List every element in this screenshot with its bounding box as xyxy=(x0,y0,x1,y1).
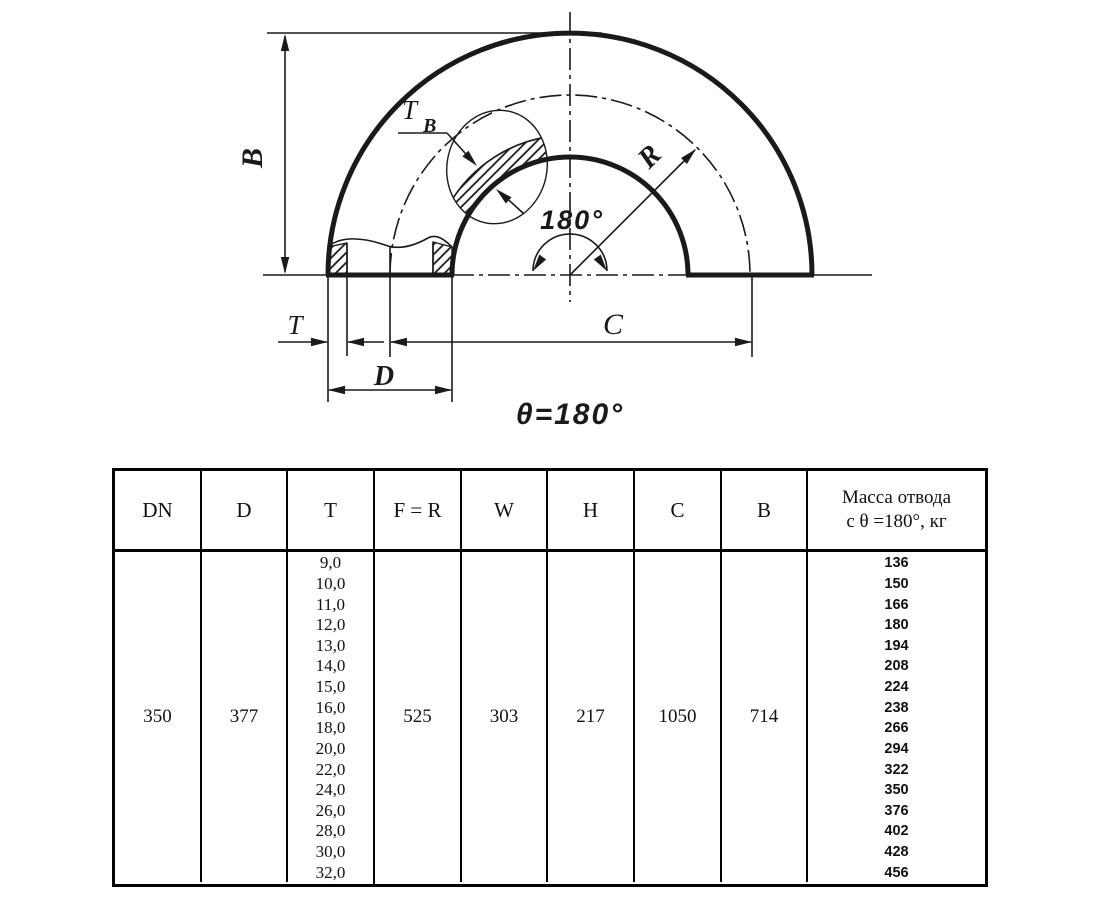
dimensions-table: DN D T F = R W H C B Масса отвода с θ =1… xyxy=(112,468,988,887)
t-value-line: 24,0 xyxy=(288,780,373,801)
mass-value-line: 238 xyxy=(808,697,985,718)
mass-header-line2: с θ =180°, кг xyxy=(846,510,946,534)
mass-value-line: 456 xyxy=(808,862,985,883)
dimension-label-c: C xyxy=(603,308,624,341)
cell-b: 714 xyxy=(722,552,808,882)
t-value-line: 9,0 xyxy=(288,553,373,574)
mass-value-line: 224 xyxy=(808,677,985,698)
cell-mass-values: 1361501661801942082242382662943223503764… xyxy=(808,552,985,884)
col-header-t: T xyxy=(288,471,375,552)
radius-label-r: R xyxy=(631,138,668,175)
t-value-line: 28,0 xyxy=(288,821,373,842)
mass-value-line: 428 xyxy=(808,842,985,863)
page: B T B R 180° T C D θ=180° DN D T F = R W… xyxy=(0,0,1100,900)
cell-fr: 525 xyxy=(375,552,462,882)
cell-w: 303 xyxy=(462,552,548,882)
t-value-line: 14,0 xyxy=(288,656,373,677)
dimension-label-tb: T xyxy=(402,95,419,125)
arrowheads xyxy=(281,34,752,394)
col-header-h: H xyxy=(548,471,635,552)
mass-value-line: 402 xyxy=(808,821,985,842)
t-value-line: 13,0 xyxy=(288,636,373,657)
mass-value-line: 180 xyxy=(808,615,985,636)
t-value-line: 22,0 xyxy=(288,759,373,780)
mass-value-line: 166 xyxy=(808,594,985,615)
t-value-line: 30,0 xyxy=(288,842,373,863)
t-value-line: 16,0 xyxy=(288,697,373,718)
t-value-line: 15,0 xyxy=(288,677,373,698)
col-header-d: D xyxy=(202,471,288,552)
cell-c: 1050 xyxy=(635,552,722,882)
t-value-line: 12,0 xyxy=(288,615,373,636)
mass-value-line: 136 xyxy=(808,553,985,574)
mass-value-line: 266 xyxy=(808,718,985,739)
col-header-c: C xyxy=(635,471,722,552)
t-value-line: 11,0 xyxy=(288,594,373,615)
t-value-line: 26,0 xyxy=(288,801,373,822)
col-header-mass: Масса отвода с θ =180°, кг xyxy=(808,471,985,552)
col-header-w: W xyxy=(462,471,548,552)
mass-value-line: 376 xyxy=(808,801,985,822)
mass-value-line: 194 xyxy=(808,636,985,657)
mass-value-line: 294 xyxy=(808,739,985,760)
mass-value-line: 208 xyxy=(808,656,985,677)
mass-header-line1: Масса отвода xyxy=(842,486,951,510)
cell-h: 217 xyxy=(548,552,635,882)
mass-value-line: 350 xyxy=(808,780,985,801)
mass-value-line: 150 xyxy=(808,574,985,595)
mass-value-line: 322 xyxy=(808,759,985,780)
col-header-fr: F = R xyxy=(375,471,462,552)
dimension-label-b: B xyxy=(236,148,269,169)
dimension-label-t: T xyxy=(287,310,304,340)
cell-d: 377 xyxy=(202,552,288,882)
dimension-label-tb-subscript: B xyxy=(422,115,436,137)
theta-equation-label: θ=180° xyxy=(516,398,624,431)
t-value-line: 10,0 xyxy=(288,574,373,595)
t-value-line: 20,0 xyxy=(288,739,373,760)
col-header-dn: DN xyxy=(115,471,202,552)
col-header-b: B xyxy=(722,471,808,552)
cell-t-values: 9,010,011,012,013,014,015,016,018,020,02… xyxy=(288,552,375,884)
t-value-line: 32,0 xyxy=(288,862,373,883)
dimension-label-d: D xyxy=(373,361,394,392)
technical-drawing-180deg-bend: B T B R 180° T C D θ=180° xyxy=(0,0,1100,462)
angle-label-180: 180° xyxy=(540,205,604,235)
t-value-line: 18,0 xyxy=(288,718,373,739)
cell-dn: 350 xyxy=(115,552,202,882)
